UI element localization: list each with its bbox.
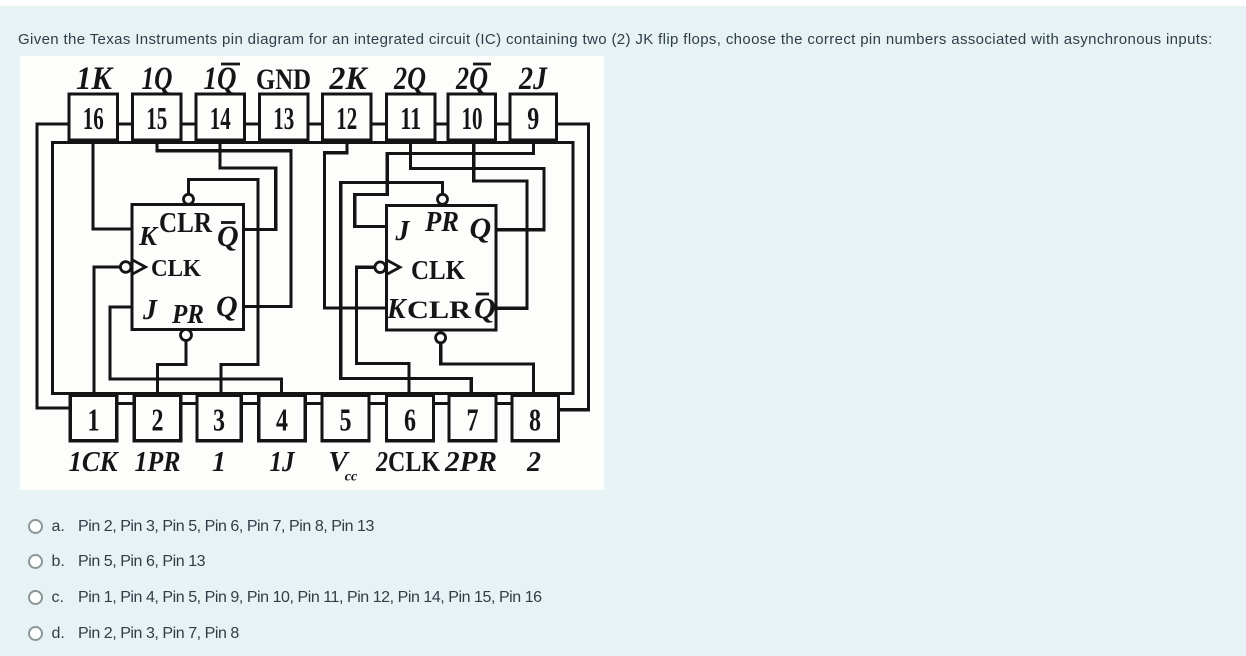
svg-text:2Q: 2Q bbox=[393, 61, 426, 97]
svg-text:11: 11 bbox=[400, 100, 421, 136]
svg-text:PR: PR bbox=[424, 207, 459, 238]
svg-text:1J: 1J bbox=[270, 447, 296, 478]
svg-text:9: 9 bbox=[527, 100, 539, 136]
svg-text:4: 4 bbox=[276, 402, 288, 438]
svg-text:2PR: 2PR bbox=[444, 447, 497, 478]
svg-text:Q: Q bbox=[216, 290, 238, 323]
svg-text:14: 14 bbox=[210, 100, 231, 136]
svg-text:1PR: 1PR bbox=[135, 447, 181, 478]
svg-text:CLR: CLR bbox=[159, 208, 213, 239]
svg-text:1K: 1K bbox=[76, 61, 114, 97]
svg-text:J: J bbox=[395, 216, 411, 247]
svg-text:1Q: 1Q bbox=[204, 61, 237, 97]
svg-text:6: 6 bbox=[404, 402, 416, 438]
svg-text:cc: cc bbox=[345, 470, 358, 485]
svg-text:PR: PR bbox=[171, 299, 204, 329]
svg-text:GND: GND bbox=[256, 63, 311, 96]
svg-text:Q: Q bbox=[474, 292, 496, 325]
svg-text:1: 1 bbox=[212, 447, 226, 478]
svg-text:8: 8 bbox=[529, 402, 541, 438]
svg-text:CLK: CLK bbox=[151, 256, 201, 282]
svg-text:J: J bbox=[142, 295, 158, 326]
svg-text:15: 15 bbox=[146, 100, 167, 136]
svg-text:2K: 2K bbox=[329, 61, 369, 97]
svg-text:3: 3 bbox=[213, 402, 225, 438]
svg-text:CLR: CLR bbox=[407, 297, 472, 324]
svg-text:12: 12 bbox=[336, 100, 357, 136]
svg-text:13: 13 bbox=[273, 100, 294, 136]
svg-text:CLK: CLK bbox=[411, 255, 465, 285]
svg-text:2: 2 bbox=[526, 447, 541, 478]
svg-text:5: 5 bbox=[340, 402, 352, 438]
svg-text:10: 10 bbox=[462, 100, 483, 136]
svg-text:2: 2 bbox=[152, 402, 164, 438]
svg-text:K: K bbox=[386, 294, 408, 325]
svg-text:1CK: 1CK bbox=[69, 447, 120, 478]
svg-text:Q: Q bbox=[470, 212, 492, 245]
svg-text:2J: 2J bbox=[518, 61, 548, 97]
svg-text:7: 7 bbox=[467, 402, 479, 438]
svg-text:2CLK: 2CLK bbox=[375, 447, 440, 478]
svg-text:16: 16 bbox=[83, 100, 104, 136]
svg-text:K: K bbox=[138, 221, 159, 251]
svg-text:Q: Q bbox=[217, 220, 239, 253]
svg-text:1: 1 bbox=[88, 402, 100, 438]
svg-text:2Q: 2Q bbox=[455, 61, 488, 97]
svg-text:1Q: 1Q bbox=[142, 61, 173, 97]
